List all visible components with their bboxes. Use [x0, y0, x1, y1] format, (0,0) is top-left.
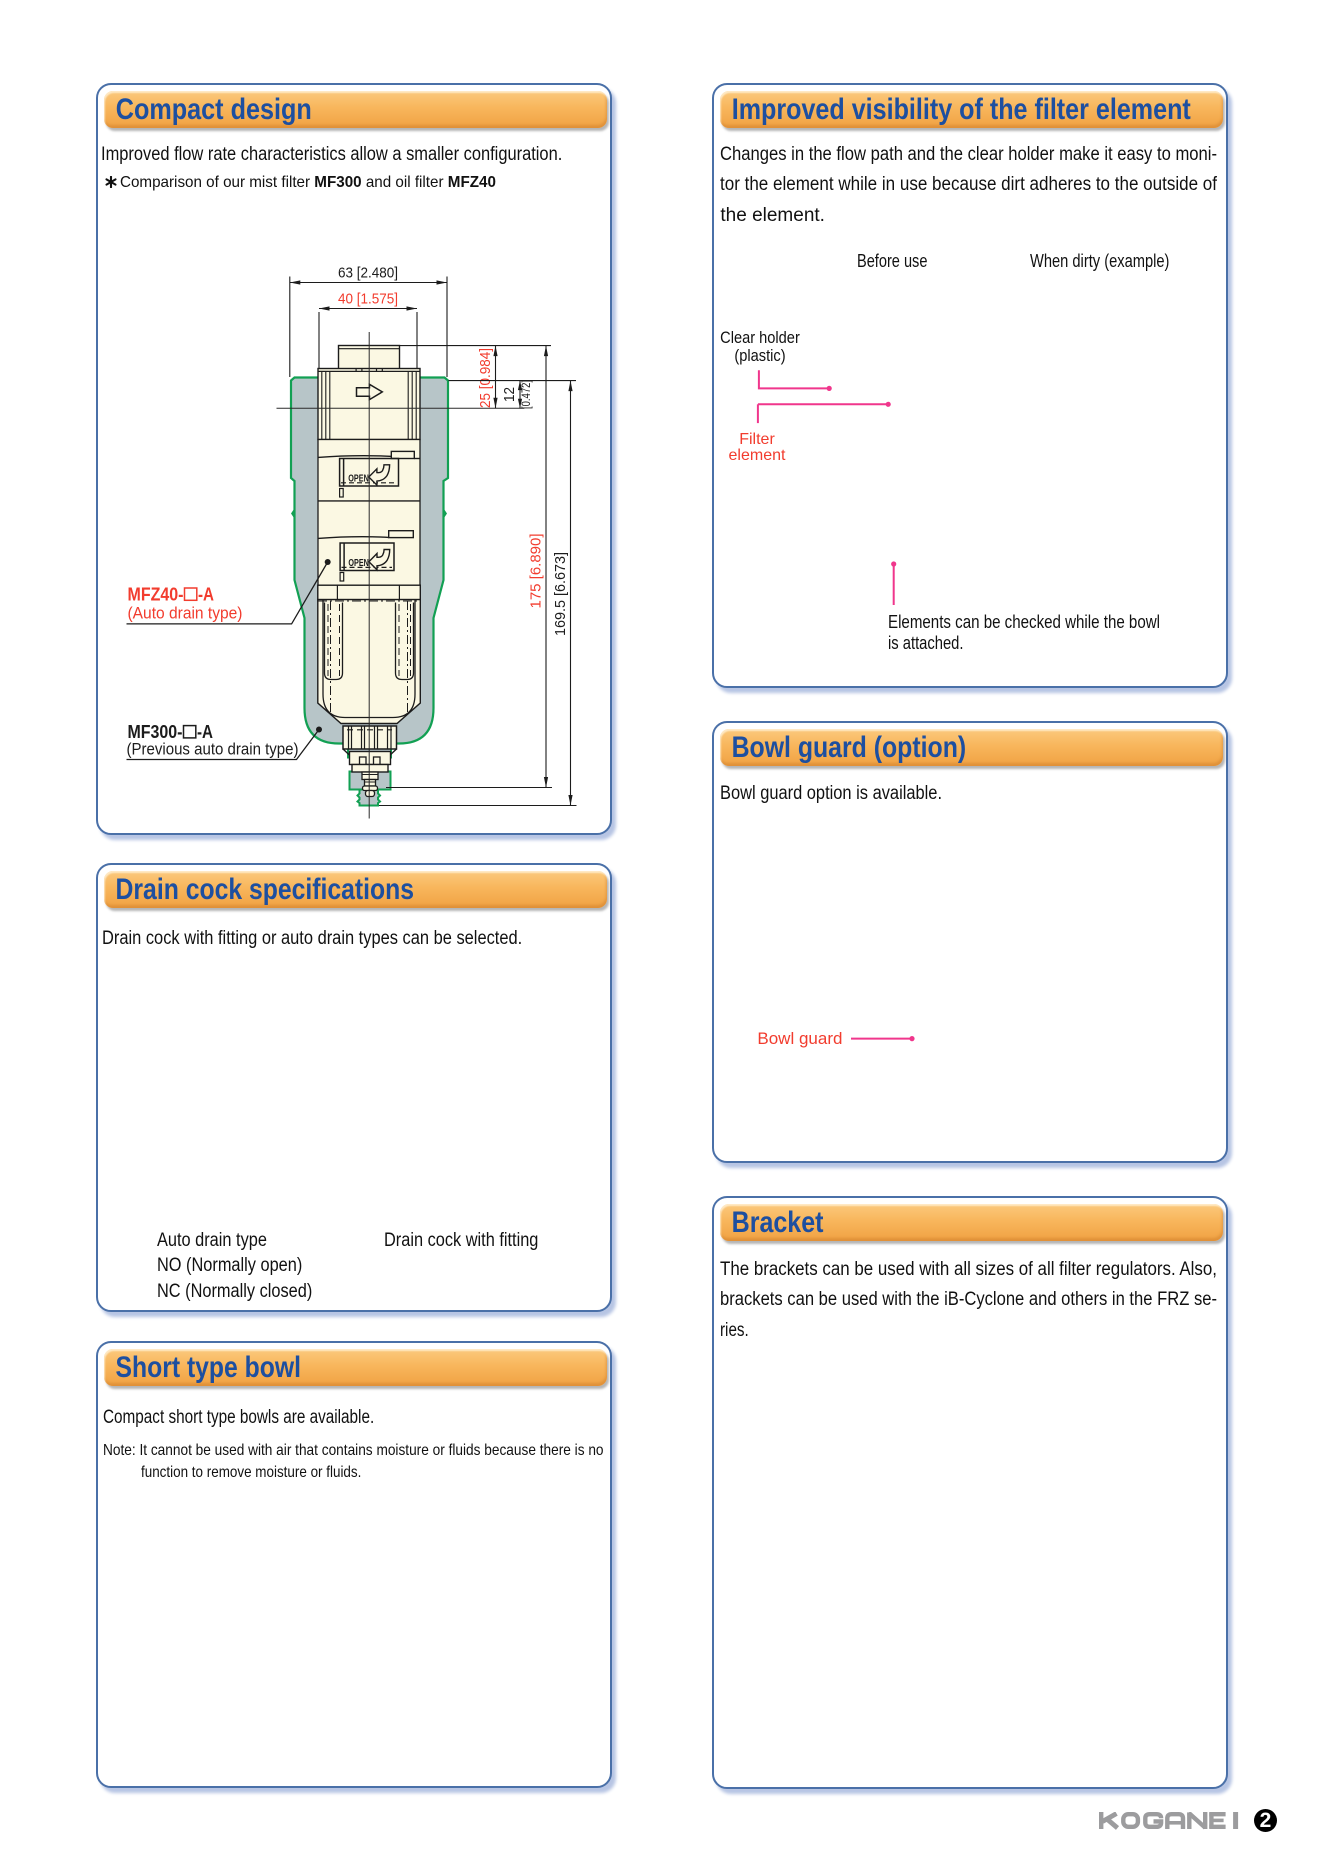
svg-text:OPEN: OPEN: [348, 472, 369, 484]
svg-text:12: 12: [501, 387, 518, 402]
svg-text:(Previous auto drain type): (Previous auto drain type): [127, 740, 299, 759]
svg-text:25 [0.984]: 25 [0.984]: [477, 348, 494, 408]
svg-text:175 [6.890]: 175 [6.890]: [528, 534, 545, 609]
svg-text:169.5 [6.673]: 169.5 [6.673]: [552, 552, 569, 636]
svg-text:-A: -A: [198, 584, 214, 604]
svg-text:MFZ40-: MFZ40-: [128, 584, 184, 604]
svg-text:40 [1.575]: 40 [1.575]: [338, 291, 398, 308]
svg-text:OPEN: OPEN: [348, 557, 369, 569]
svg-text:(Auto drain type): (Auto drain type): [128, 603, 243, 622]
svg-text:63 [2.480]: 63 [2.480]: [338, 265, 398, 282]
svg-text:[0.472]: [0.472]: [519, 380, 533, 409]
